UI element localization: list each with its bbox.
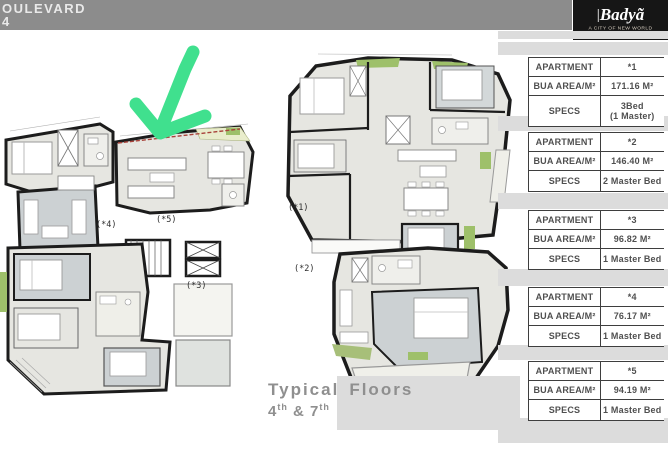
table-row: BUA AREA/M² 96.82 M² [529, 229, 664, 248]
unit-label-5: (*5) [156, 215, 176, 225]
caption-word-typical: Typical [268, 380, 339, 399]
table-row: APARTMENT *3 [529, 210, 664, 229]
project-title-line1: OULEVARD [2, 2, 572, 15]
brand-separator: | [597, 7, 600, 23]
apartment-table-2: APARTMENT *2 BUA AREA/M² 146.40 M² SPECS… [528, 132, 664, 192]
separator-strip [498, 193, 668, 209]
table-row: APARTMENT *2 [529, 132, 664, 151]
table-row: BUA AREA/M² 94.19 M² [529, 380, 664, 399]
specs-label: SPECS [529, 96, 601, 126]
floors-caption: TypicalFloors 4th & 7th [268, 380, 413, 420]
specs-value: 2 Master Bed [601, 171, 664, 191]
specs-label: SPECS [529, 249, 601, 269]
bua-label: BUA AREA/M² [529, 307, 601, 325]
floor-number-a: 4 [268, 403, 277, 420]
apartment-label: APARTMENT [529, 288, 601, 306]
apartment-value: *5 [601, 362, 664, 380]
brand-name: |Badyã [573, 6, 668, 25]
apartment-value: *1 [601, 58, 664, 76]
apartment-value: *3 [601, 211, 664, 229]
apartment-value: *2 [601, 133, 664, 151]
specs-value: 1 Master Bed [601, 400, 664, 420]
specs-value: 1 Master Bed [601, 249, 664, 269]
bua-value: 76.17 M² [601, 307, 664, 325]
brand-strip [498, 31, 668, 39]
bua-label: BUA AREA/M² [529, 230, 601, 248]
page: (*1) (*2) (*3) (*4) (*5) OULEVARD 4 |Bad… [0, 0, 668, 452]
separator-strip [498, 418, 668, 443]
apartment-value: *4 [601, 288, 664, 306]
bua-value: 146.40 M² [601, 152, 664, 170]
bua-value: 94.19 M² [601, 381, 664, 399]
apartment-table-4: APARTMENT *4 BUA AREA/M² 76.17 M² SPECS … [528, 287, 664, 347]
table-row: APARTMENT *1 [529, 57, 664, 76]
unit-label-2: (*2) [294, 264, 314, 274]
table-row: SPECS 1 Master Bed [529, 399, 664, 421]
bua-value: 96.82 M² [601, 230, 664, 248]
specs-value: 1 Master Bed [601, 326, 664, 346]
table-row: SPECS 2 Master Bed [529, 170, 664, 192]
unit-label-4: (*4) [96, 220, 116, 230]
right-building [288, 58, 510, 242]
apartment-label: APARTMENT [529, 133, 601, 151]
floor-sup-b: th [319, 402, 330, 412]
table-row: SPECS 1 Master Bed [529, 325, 664, 347]
bua-label: BUA AREA/M² [529, 381, 601, 399]
unit-label-3: (*3) [186, 281, 206, 291]
separator-strip [498, 42, 668, 55]
specs-label: SPECS [529, 400, 601, 420]
unit-label-1: (*1) [288, 203, 308, 213]
apartment-label: APARTMENT [529, 362, 601, 380]
table-row: APARTMENT *5 [529, 361, 664, 380]
specs-line1: 3Bed [621, 101, 644, 111]
apartment-table-3: APARTMENT *3 BUA AREA/M² 96.82 M² SPECS … [528, 210, 664, 270]
caption-floor-numbers: 4th & 7th [268, 402, 413, 420]
table-row: BUA AREA/M² 76.17 M² [529, 306, 664, 325]
specs-label: SPECS [529, 171, 601, 191]
bua-label: BUA AREA/M² [529, 77, 601, 95]
table-row: BUA AREA/M² 171.16 M² [529, 76, 664, 95]
apartment-label: APARTMENT [529, 58, 601, 76]
lower-building [312, 224, 508, 390]
table-row: BUA AREA/M² 146.40 M² [529, 151, 664, 170]
left-building [0, 124, 253, 394]
table-row: APARTMENT *4 [529, 287, 664, 306]
apartment-label: APARTMENT [529, 211, 601, 229]
table-row: SPECS 3Bed (1 Master) [529, 95, 664, 127]
apartment-table-1: APARTMENT *1 BUA AREA/M² 171.16 M² SPECS… [528, 57, 664, 127]
floor-sup-a: th [277, 402, 288, 412]
separator-strip [498, 345, 668, 360]
caption-word-floors: Floors [349, 380, 413, 399]
table-row: SPECS 1 Master Bed [529, 248, 664, 270]
project-title-line2: 4 [2, 15, 572, 28]
specs-line2: (1 Master) [610, 111, 655, 121]
separator-strip [498, 269, 668, 286]
floor-joiner: & [288, 403, 310, 420]
floor-number-b: 7 [310, 403, 319, 420]
bua-value: 171.16 M² [601, 77, 664, 95]
specs-label: SPECS [529, 326, 601, 346]
bua-label: BUA AREA/M² [529, 152, 601, 170]
header-bar: OULEVARD 4 [0, 0, 572, 30]
specs-value: 3Bed (1 Master) [601, 96, 664, 126]
apartment-table-5: APARTMENT *5 BUA AREA/M² 94.19 M² SPECS … [528, 361, 664, 421]
highlight-arrow-icon [136, 52, 205, 133]
